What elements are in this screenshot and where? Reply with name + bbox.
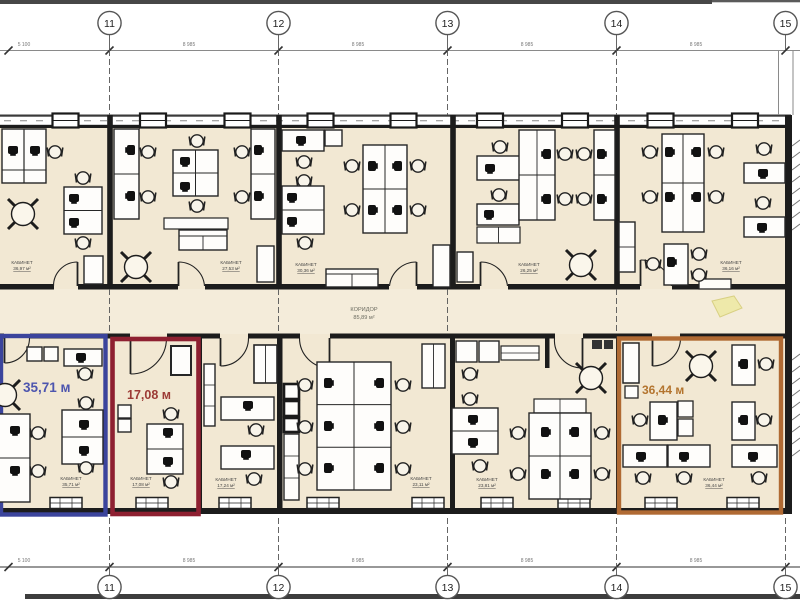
svg-text:КАБИНЕТ: КАБИНЕТ — [60, 476, 81, 481]
svg-text:8 985: 8 985 — [690, 558, 703, 564]
svg-text:КАБИНЕТ: КАБИНЕТ — [295, 262, 316, 267]
svg-text:36,44 м: 36,44 м — [642, 383, 684, 397]
svg-text:14: 14 — [611, 582, 623, 594]
svg-text:36,16 м²: 36,16 м² — [722, 266, 740, 271]
svg-text:36,97 м²: 36,97 м² — [13, 266, 31, 271]
svg-text:КАБИНЕТ: КАБИНЕТ — [410, 476, 431, 481]
svg-text:85,89 м²: 85,89 м² — [353, 315, 374, 321]
svg-text:КАБИНЕТ: КАБИНЕТ — [703, 477, 724, 482]
svg-text:5 100: 5 100 — [18, 558, 31, 564]
svg-text:35,71 м: 35,71 м — [23, 380, 71, 395]
svg-text:26,25 м²: 26,25 м² — [520, 268, 538, 273]
svg-text:13: 13 — [442, 18, 454, 30]
svg-text:11: 11 — [104, 582, 115, 594]
svg-text:12: 12 — [273, 18, 285, 30]
svg-text:12: 12 — [273, 582, 285, 594]
svg-text:17,24 м²: 17,24 м² — [217, 483, 235, 488]
svg-text:КАБИНЕТ: КАБИНЕТ — [220, 260, 241, 265]
svg-text:8 985: 8 985 — [521, 558, 534, 564]
svg-text:14: 14 — [611, 18, 623, 30]
svg-text:36,44 м²: 36,44 м² — [705, 483, 723, 488]
svg-text:8 985: 8 985 — [352, 558, 365, 564]
svg-text:КАБИНЕТ: КАБИНЕТ — [215, 477, 236, 482]
svg-text:27,53 м²: 27,53 м² — [222, 266, 240, 271]
svg-text:17,08 м²: 17,08 м² — [132, 482, 150, 487]
svg-text:КАБИНЕТ: КАБИНЕТ — [130, 476, 151, 481]
svg-text:КАБИНЕТ: КАБИНЕТ — [11, 260, 32, 265]
svg-text:15: 15 — [780, 18, 792, 30]
svg-text:8 985: 8 985 — [183, 558, 196, 564]
svg-text:15: 15 — [780, 582, 792, 594]
svg-text:8 985: 8 985 — [690, 42, 703, 48]
svg-text:17,08 м: 17,08 м — [127, 388, 171, 402]
svg-text:5 100: 5 100 — [18, 42, 31, 48]
svg-text:КАБИНЕТ: КАБИНЕТ — [476, 477, 497, 482]
svg-text:13: 13 — [442, 582, 454, 594]
svg-text:23,11 м²: 23,11 м² — [412, 482, 430, 487]
svg-text:8 985: 8 985 — [352, 42, 365, 48]
svg-text:КАБИНЕТ: КАБИНЕТ — [720, 260, 741, 265]
svg-text:30,36 м²: 30,36 м² — [297, 268, 315, 273]
svg-text:11: 11 — [104, 18, 115, 30]
svg-text:23,81 м²: 23,81 м² — [478, 483, 496, 488]
svg-text:КАБИНЕТ: КАБИНЕТ — [518, 262, 539, 267]
svg-text:35,71 м²: 35,71 м² — [62, 482, 80, 487]
svg-text:8 985: 8 985 — [183, 42, 196, 48]
svg-text:8 985: 8 985 — [521, 42, 534, 48]
svg-text:КОРИДОР: КОРИДОР — [350, 307, 377, 313]
